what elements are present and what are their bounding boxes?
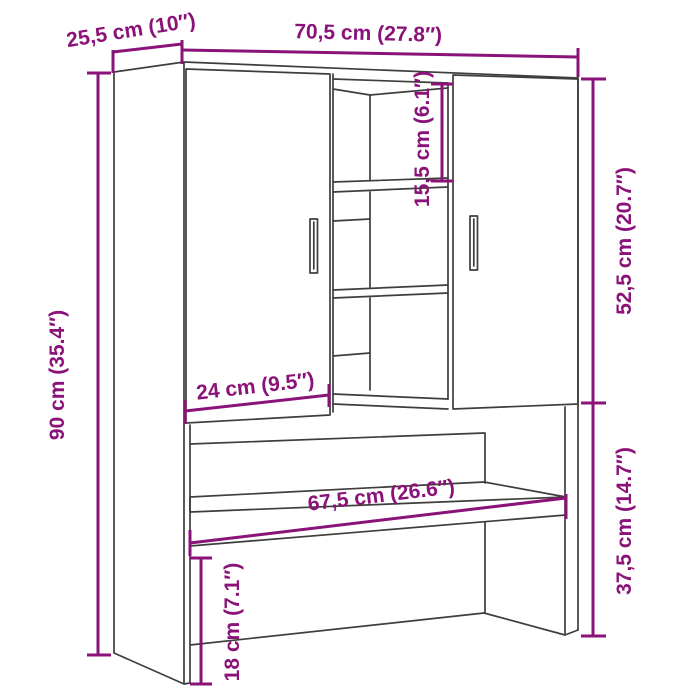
cabinet-left-side-panel <box>114 62 184 684</box>
cabinet-top-edge <box>184 62 578 78</box>
right-door-handle <box>470 216 478 270</box>
dim-lower-section-label: 37,5 cm (14.7″) <box>613 447 636 595</box>
dimension-labels: 25,5 cm (10″) 70,5 cm (27.8″) 90 cm (35.… <box>46 9 636 681</box>
dim-upper-section-label: 52,5 cm (20.7″) <box>613 167 636 315</box>
dim-lower-section-line <box>581 403 606 636</box>
dim-total-width-label: 70,5 cm (27.8″) <box>294 20 442 47</box>
dim-total-width-line <box>182 48 578 77</box>
dim-side-drop-line <box>190 558 212 684</box>
dimension-diagram: 25,5 cm (10″) 70,5 cm (27.8″) 90 cm (35.… <box>0 0 700 700</box>
dimension-lines <box>87 40 606 684</box>
middle-shelf-2 <box>333 285 448 298</box>
dim-upper-section-line <box>581 79 606 403</box>
dim-niche-width-label: 67,5 cm (26.6″) <box>306 475 455 515</box>
cabinet-line-art <box>114 62 578 684</box>
dim-top-compartment-line <box>431 84 453 181</box>
niche-top-back-edge <box>190 433 484 444</box>
middle-sidewall-line-1 <box>333 219 370 221</box>
right-panel-bottom-edge <box>484 613 578 635</box>
middle-bottom-slab <box>333 394 448 409</box>
dim-side-drop-label: 18 cm (7.1″) <box>221 563 244 682</box>
left-door-handle <box>310 219 318 273</box>
dim-top-compartment-label: 15,5 cm (6.1″) <box>411 71 434 207</box>
cabinet-diagram-svg: 25,5 cm (10″) 70,5 cm (27.8″) 90 cm (35.… <box>0 0 700 700</box>
middle-sidewall-line-2 <box>333 353 370 356</box>
dim-total-height-label: 90 cm (35.4″) <box>46 310 69 440</box>
right-door <box>453 75 578 409</box>
dim-total-height-line <box>87 73 111 655</box>
